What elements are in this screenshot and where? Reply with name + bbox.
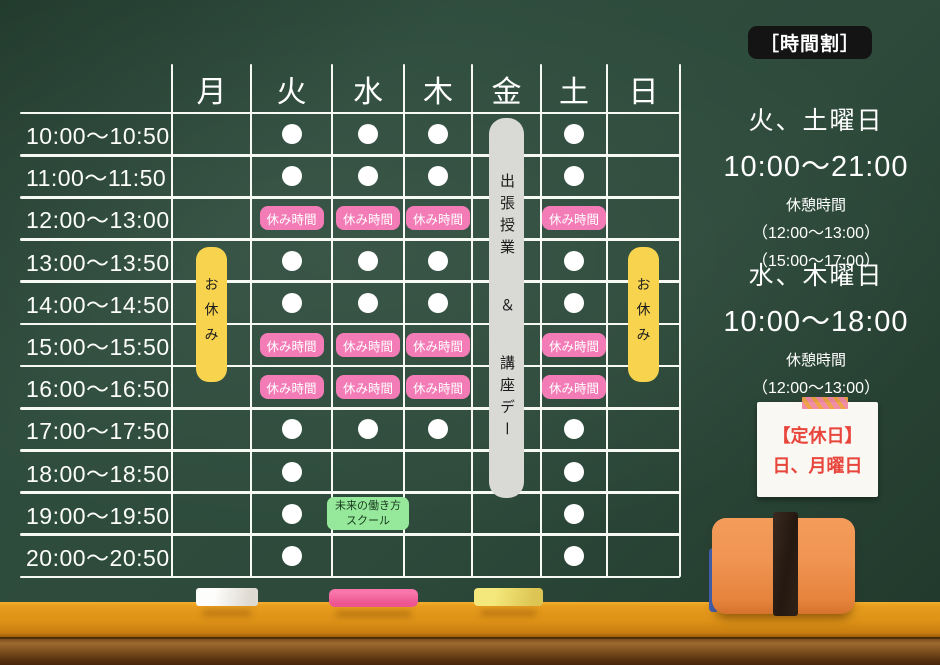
wood-shelf: [0, 637, 940, 665]
friday-event-badge: 出張授業＆講座デー: [489, 118, 524, 498]
closed-badge-label: お休み: [634, 277, 654, 352]
day-header-2: 火: [251, 64, 332, 113]
title-badge: ［時間割］: [748, 26, 872, 59]
school-badge-line: スクール: [346, 514, 390, 529]
chalkboard-scene: 月火水木金土日10:00〜10:5011:00〜11:5012:00〜13:00…: [0, 0, 940, 665]
lesson-dot: [564, 419, 584, 439]
lesson-dot: [282, 124, 302, 144]
title-badge-label: ［時間割］: [760, 29, 860, 56]
school-badge: 未来の働き方スクール: [327, 497, 409, 530]
hours-days: 水、木曜日: [700, 256, 932, 292]
closed-days-value: 日、月曜日: [773, 452, 863, 478]
hours-range: 10:00〜21:00: [700, 143, 932, 185]
hours-days: 火、土曜日: [700, 101, 932, 137]
break-badge: 休み時間: [406, 333, 470, 357]
grid-vline: [679, 64, 682, 577]
break-badge: 休み時間: [542, 206, 606, 230]
break-title: 休憩時間: [700, 194, 932, 215]
time-row-label: 15:00〜15:50: [0, 324, 172, 366]
time-row-label: 10:00〜10:50: [0, 113, 172, 155]
lesson-dot: [564, 462, 584, 482]
lesson-dot: [358, 251, 378, 271]
grid-vline: [540, 64, 543, 577]
break-badge: 休み時間: [336, 333, 400, 357]
lesson-dot: [564, 251, 584, 271]
break-badge: 休み時間: [260, 206, 324, 230]
break-badge: 休み時間: [542, 375, 606, 399]
lesson-dot: [282, 419, 302, 439]
time-row-label: 17:00〜17:50: [0, 408, 172, 450]
break-badge: 休み時間: [406, 375, 470, 399]
lesson-dot: [358, 166, 378, 186]
break-range: （12:00〜13:00）: [700, 374, 932, 398]
lesson-dot: [282, 504, 302, 524]
day-header-4: 木: [404, 64, 472, 113]
lesson-dot: [358, 293, 378, 313]
school-badge-line: 未来の働き方: [335, 499, 401, 514]
grid-vline: [471, 64, 474, 577]
lesson-dot: [358, 124, 378, 144]
time-row-label: 20:00〜20:50: [0, 535, 172, 577]
break-badge: 休み時間: [406, 206, 470, 230]
time-row-label: 18:00〜18:50: [0, 450, 172, 492]
lesson-dot: [564, 166, 584, 186]
hours-block-tue-sat: 火、土曜日 10:00〜21:00 休憩時間 （12:00〜13:00） （15…: [700, 101, 932, 271]
eraser-strap: [773, 512, 798, 616]
time-row-label: 13:00〜13:50: [0, 240, 172, 282]
chalkboard: 月火水木金土日10:00〜10:5011:00〜11:5012:00〜13:00…: [0, 0, 940, 602]
lesson-dot: [282, 293, 302, 313]
time-row-label: 19:00〜19:50: [0, 493, 172, 535]
break-title: 休憩時間: [700, 349, 932, 370]
lesson-dot: [428, 251, 448, 271]
break-range: （12:00〜13:00）: [700, 219, 932, 243]
hours-range: 10:00〜18:00: [700, 298, 932, 340]
lesson-dot: [428, 166, 448, 186]
lesson-dot: [428, 124, 448, 144]
break-badge: 休み時間: [542, 333, 606, 357]
lesson-dot: [428, 419, 448, 439]
lesson-dot: [564, 546, 584, 566]
friday-event-text: 講座デー: [496, 355, 517, 443]
break-badge: 休み時間: [336, 375, 400, 399]
grid-vline: [250, 64, 253, 577]
lesson-dot: [358, 419, 378, 439]
lesson-dot: [282, 546, 302, 566]
break-badge: 休み時間: [336, 206, 400, 230]
break-badge: 休み時間: [260, 375, 324, 399]
time-row-label: 16:00〜16:50: [0, 366, 172, 408]
lesson-dot: [282, 166, 302, 186]
closed-badge: お休み: [628, 247, 659, 382]
friday-event-text: 出張授業: [496, 173, 517, 261]
day-header-5: 金: [472, 64, 541, 113]
lesson-dot: [428, 293, 448, 313]
time-row-label: 11:00〜11:50: [0, 155, 172, 197]
day-header-7: 日: [607, 64, 680, 113]
day-header-1: 月: [172, 64, 251, 113]
lesson-dot: [564, 124, 584, 144]
washi-tape: [802, 397, 848, 409]
day-header-6: 土: [541, 64, 607, 113]
time-row-label: 12:00〜13:00: [0, 197, 172, 239]
closed-badge-label: お休み: [202, 277, 222, 352]
time-row-label: 14:00〜14:50: [0, 282, 172, 324]
friday-event-text: ＆: [496, 297, 517, 319]
lesson-dot: [282, 462, 302, 482]
chalk-yellow: [474, 588, 543, 606]
closed-days-title: 【定休日】: [773, 422, 863, 448]
day-header-3: 水: [332, 64, 404, 113]
closed-badge: お休み: [196, 247, 227, 382]
lesson-dot: [564, 293, 584, 313]
grid-vline: [606, 64, 609, 577]
closed-days-note: 【定休日】 日、月曜日: [757, 402, 878, 497]
break-badge: 休み時間: [260, 333, 324, 357]
chalk-white: [196, 588, 258, 606]
lesson-dot: [282, 251, 302, 271]
chalk-pink: [329, 589, 418, 607]
lesson-dot: [564, 504, 584, 524]
